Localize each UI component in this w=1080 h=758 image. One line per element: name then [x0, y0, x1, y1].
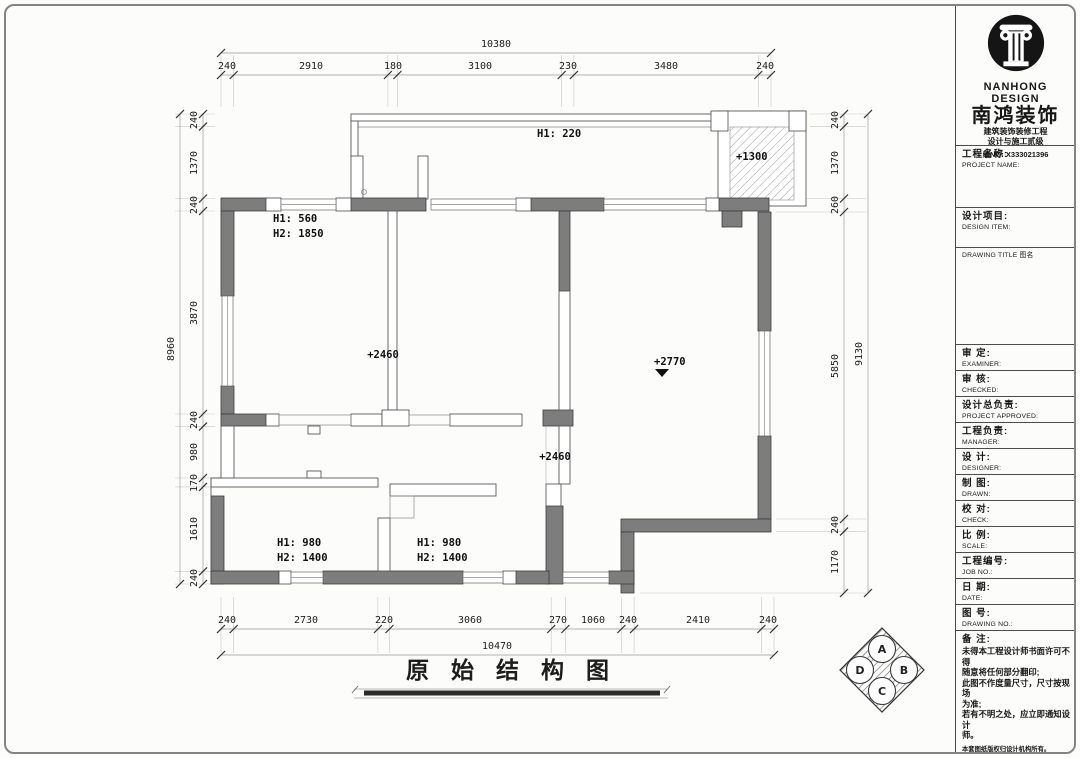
- notes-block: 备 注: 未得本工程设计师书面许可不得 随意将任何部分翻印; 此图不作度量尺寸，…: [956, 631, 1074, 754]
- dim-left-seg: 240: [189, 411, 200, 429]
- dim-top-seg: 3100: [468, 61, 492, 72]
- field-label-cn: 图 号:: [962, 608, 1069, 620]
- dim-bottom-seg: 1060: [581, 615, 605, 626]
- dim-bottom-seg: 3060: [458, 615, 482, 626]
- dim-left-overall: 8960: [166, 337, 177, 361]
- field-label-en: SCALE:: [962, 542, 1069, 551]
- note-line: 未得本工程设计师书面许可不得: [962, 646, 1070, 667]
- level-low-label: +2460: [539, 451, 571, 463]
- bottom-mid-h1-label: H1: 980: [417, 537, 461, 549]
- drawing-title-row-label: DRAWING TITLE 图名: [962, 251, 1069, 260]
- field-drawing-title: DRAWING TITLE 图名: [956, 248, 1074, 345]
- field-examiner: 审 定: EXAMINER:: [956, 345, 1074, 371]
- dim-bottom-overall: 10470: [482, 641, 512, 652]
- field-label-en: CHECK:: [962, 516, 1069, 525]
- note-line: 此图不作度量尺寸，尺寸按现场: [962, 678, 1070, 699]
- blueprint-page: 10380 240 2910 180 3100 230 3480 240 104…: [0, 0, 1080, 758]
- walls: [211, 198, 771, 593]
- field-label-cn: 审 定:: [962, 348, 1069, 360]
- field-checked: 审 核: CHECKED:: [956, 371, 1074, 397]
- field-design-item: 设计项目: DESIGN ITEM:: [956, 208, 1074, 248]
- bottom-left-h2-label: H2: 1400: [277, 552, 328, 564]
- compass-d-label: D: [855, 664, 864, 677]
- note-line: 随意将任何部分翻印;: [962, 667, 1070, 678]
- dim-bottom-seg: 220: [375, 615, 393, 626]
- dimension-chain-right: 9130 240 1370 260 5850 240 1170: [830, 110, 872, 597]
- field-label-en: PROJECT APPROVED:: [962, 412, 1069, 421]
- field-label-en: EXAMINER:: [962, 360, 1069, 369]
- title-block-sidebar: NANHONG DESIGN 南鸿装饰 建筑装饰装修工程 设计与施工贰级 编NO…: [955, 6, 1074, 752]
- dim-right-seg: 1370: [830, 151, 841, 175]
- dim-top-seg: 3480: [654, 61, 678, 72]
- dim-bottom-seg: 2730: [294, 615, 318, 626]
- bottom-mid-h2-label: H2: 1400: [417, 552, 468, 564]
- field-label-en: JOB NO.:: [962, 568, 1069, 577]
- field-label-cn: 工程名称:: [962, 149, 1069, 161]
- dim-top-overall: 10380: [481, 39, 511, 50]
- dim-left-seg: 170: [189, 474, 200, 492]
- dim-bottom-seg: 270: [549, 615, 567, 626]
- dim-left-seg: 240: [189, 569, 200, 587]
- dim-bottom-seg: 240: [759, 615, 777, 626]
- balcony-height-label: H1: 220: [537, 128, 581, 140]
- field-label-cn: 工程负责:: [962, 426, 1069, 438]
- company-name-cn: 南鸿装饰: [962, 105, 1069, 127]
- compass-b-label: B: [900, 664, 908, 677]
- dim-top-seg: 240: [218, 61, 236, 72]
- dim-bottom-seg: 240: [619, 615, 637, 626]
- dim-left-seg: 3870: [189, 301, 200, 325]
- field-label-cn: 校 对:: [962, 504, 1069, 516]
- note-line: 若有不明之处，应立即通知设计: [962, 709, 1070, 730]
- field-project-name: 工程名称: PROJECT NAME:: [956, 146, 1074, 208]
- dim-right-seg: 240: [830, 516, 841, 534]
- notes-header: 备 注:: [962, 634, 1070, 646]
- column-logo-icon: [985, 12, 1047, 74]
- field-label-en: DESIGN ITEM:: [962, 223, 1069, 232]
- dim-top-seg: 230: [559, 61, 577, 72]
- dimension-chain-bottom: 10470 240 2730 220 3060 270 1060 240 241…: [217, 615, 778, 659]
- field-label-en: DATE:: [962, 594, 1069, 603]
- partition-walls: [211, 211, 570, 571]
- field-designer: 设 计: DESIGNER:: [956, 449, 1074, 475]
- room1-h2-label: H2: 1850: [273, 228, 324, 240]
- field-label-cn: 设 计:: [962, 452, 1069, 464]
- dim-left-seg: 1370: [189, 151, 200, 175]
- company-cert-line1: 建筑装饰装修工程: [962, 127, 1069, 137]
- dim-left-seg: 980: [189, 443, 200, 461]
- dim-top-seg: 240: [756, 61, 774, 72]
- dimension-chain-top: 10380 240 2910 180 3100 230 3480 240: [217, 39, 775, 79]
- field-drawn: 制 图: DRAWN:: [956, 475, 1074, 501]
- dim-right-seg: 240: [830, 111, 841, 129]
- drawing-title: 原 始 结 构 图: [406, 657, 616, 684]
- field-manager: 工程负责: MANAGER:: [956, 423, 1074, 449]
- field-label-cn: 设计总负责:: [962, 400, 1069, 412]
- field-label-en: MANAGER:: [962, 438, 1069, 447]
- dim-bottom-seg: 2410: [686, 615, 710, 626]
- dim-right-overall: 9130: [854, 342, 865, 366]
- level-marker-triangle: [655, 369, 669, 377]
- dim-left-seg: 240: [189, 196, 200, 214]
- level-main-label: +2770: [654, 356, 686, 368]
- dim-bottom-seg: 240: [218, 615, 236, 626]
- field-label-cn: 比 例:: [962, 530, 1069, 542]
- dimension-chain-left: 8960 240 1370 240 3870 240 980 170 1610 …: [166, 110, 207, 588]
- dim-left-seg: 240: [189, 111, 200, 129]
- note-copyright: 本套图纸版权归设计机构所有。: [962, 744, 1070, 753]
- note-line: 师。: [962, 730, 1070, 741]
- drawing-title-block: 原 始 结 构 图: [352, 657, 670, 698]
- field-label-en: DESIGNER:: [962, 464, 1069, 473]
- field-drawing-no: 图 号: DRAWING NO.:: [956, 605, 1074, 631]
- dim-top-seg: 2910: [299, 61, 323, 72]
- dim-top-seg: 180: [384, 61, 402, 72]
- dim-right-seg: 1170: [830, 550, 841, 574]
- compass-a-label: A: [878, 643, 887, 656]
- field-label-cn: 工程编号:: [962, 556, 1069, 568]
- field-label-en: PROJECT NAME:: [962, 161, 1069, 170]
- field-label-cn: 日 期:: [962, 582, 1069, 594]
- compass-c-label: C: [878, 685, 886, 698]
- field-check: 校 对: CHECK:: [956, 501, 1074, 527]
- bottom-left-h1-label: H1: 980: [277, 537, 321, 549]
- floor-plan-canvas: 10380 240 2910 180 3100 230 3480 240 104…: [6, 6, 956, 754]
- field-label-en: CHECKED:: [962, 386, 1069, 395]
- dim-left-seg: 1610: [189, 517, 200, 541]
- title-underline-bar: [364, 691, 660, 696]
- field-label-cn: 设计项目:: [962, 211, 1069, 223]
- field-label-cn: 审 核:: [962, 374, 1069, 386]
- shaft-level-label: +1300: [736, 151, 768, 163]
- dim-right-seg: 260: [830, 196, 841, 214]
- field-label-en: DRAWING NO.:: [962, 620, 1069, 629]
- note-line: 为准;: [962, 699, 1070, 710]
- company-logo-block: NANHONG DESIGN 南鸿装饰 建筑装饰装修工程 设计与施工贰级 编NO…: [956, 6, 1074, 146]
- plan-labels: H1: 220 +1300 H1: 560 H2: 1850 +2460 +27…: [273, 128, 768, 564]
- drawing-frame: 10380 240 2910 180 3100 230 3480 240 104…: [4, 4, 1076, 754]
- orientation-compass: A B C D: [840, 628, 924, 712]
- field-job-no: 工程编号: JOB NO.:: [956, 553, 1074, 579]
- field-project-approved: 设计总负责: PROJECT APPROVED:: [956, 397, 1074, 423]
- field-label-en: DRAWN:: [962, 490, 1069, 499]
- company-name-en: NANHONG DESIGN: [962, 81, 1069, 105]
- room1-h1-label: H1: 560: [273, 213, 317, 225]
- floor-plan: H1: 220 +1300 H1: 560 H2: 1850 +2460 +27…: [211, 111, 806, 593]
- field-date: 日 期: DATE:: [956, 579, 1074, 605]
- field-label-cn: 制 图:: [962, 478, 1069, 490]
- level-mid-label: +2460: [367, 349, 399, 361]
- balcony: [351, 114, 771, 199]
- field-scale: 比 例: SCALE:: [956, 527, 1074, 553]
- dim-right-seg: 5850: [830, 354, 841, 378]
